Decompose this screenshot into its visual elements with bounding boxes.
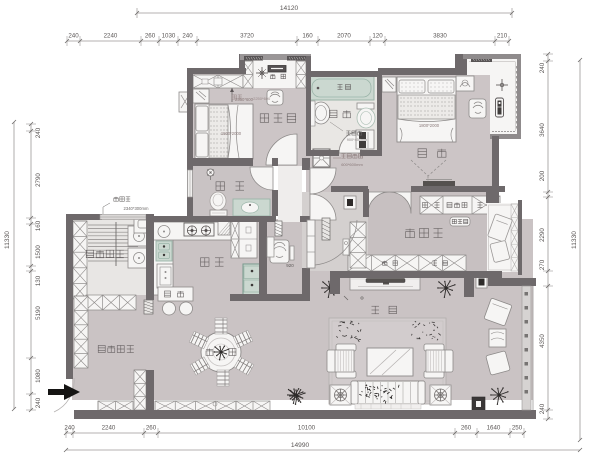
- svg-text:1500*2000: 1500*2000: [221, 131, 242, 136]
- svg-text:240: 240: [539, 62, 546, 73]
- svg-text:160: 160: [35, 220, 42, 231]
- svg-text:260: 260: [461, 425, 472, 432]
- svg-text:1640: 1640: [487, 425, 501, 432]
- svg-text:240: 240: [68, 33, 79, 40]
- svg-text:2340*300mm: 2340*300mm: [124, 206, 149, 211]
- svg-text:270: 270: [539, 259, 546, 270]
- svg-text:3640: 3640: [539, 123, 546, 137]
- svg-text:2240: 2240: [102, 425, 116, 432]
- svg-text:1500: 1500: [35, 245, 42, 259]
- svg-text:14120: 14120: [280, 5, 299, 12]
- svg-text:3830: 3830: [433, 33, 447, 40]
- svg-text:130: 130: [35, 275, 42, 286]
- svg-text:240: 240: [35, 127, 42, 138]
- svg-text:240: 240: [64, 425, 75, 432]
- svg-text:11330: 11330: [4, 231, 11, 249]
- svg-text:1800*2000: 1800*2000: [419, 123, 440, 128]
- svg-text:600*600mm: 600*600mm: [341, 162, 363, 167]
- svg-text:4350: 4350: [539, 334, 546, 348]
- svg-text:260: 260: [146, 425, 157, 432]
- svg-text:2290: 2290: [539, 228, 546, 242]
- svg-text:5190: 5190: [35, 306, 42, 320]
- svg-text:10100: 10100: [298, 425, 316, 432]
- svg-text:900*450mm: 900*450mm: [347, 138, 367, 142]
- svg-text:14990: 14990: [291, 442, 310, 449]
- svg-text:210: 210: [497, 33, 508, 40]
- svg-text:200: 200: [539, 170, 546, 181]
- svg-text:1030: 1030: [162, 33, 176, 40]
- svg-text:3720: 3720: [240, 33, 254, 40]
- svg-text:250: 250: [512, 425, 523, 432]
- svg-text:240: 240: [35, 397, 42, 408]
- svg-text:2550*600: 2550*600: [235, 97, 254, 102]
- svg-text:2790: 2790: [35, 173, 42, 187]
- svg-text:920: 920: [286, 263, 294, 268]
- svg-text:240: 240: [182, 33, 193, 40]
- svg-text:11330: 11330: [571, 231, 578, 249]
- svg-text:2070: 2070: [337, 33, 351, 40]
- svg-text::2250*600: :2250*600: [252, 96, 271, 101]
- svg-text:120: 120: [372, 33, 383, 40]
- svg-text:260: 260: [145, 33, 156, 40]
- svg-text:240: 240: [539, 403, 546, 414]
- svg-text:1080: 1080: [35, 369, 42, 383]
- svg-text:160: 160: [302, 33, 313, 40]
- svg-text:2240: 2240: [104, 33, 118, 40]
